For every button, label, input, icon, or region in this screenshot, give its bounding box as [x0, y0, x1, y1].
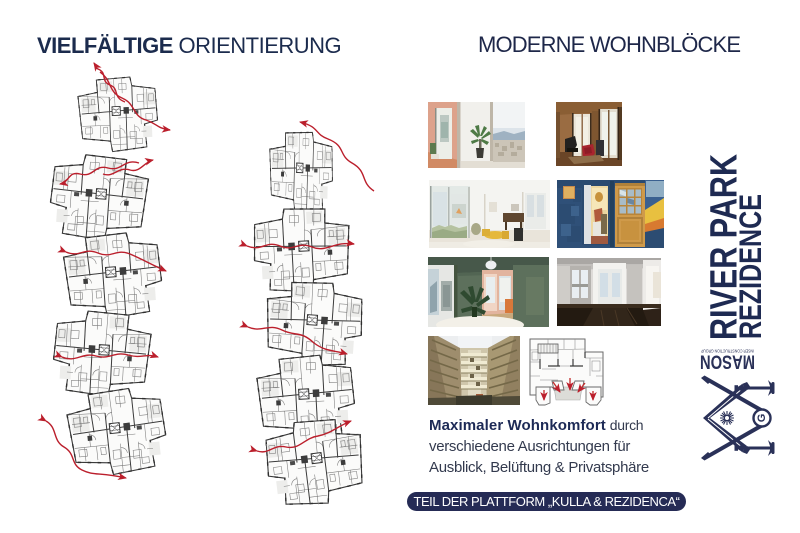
svg-text:INSER CONSTRUCTION GROUP: INSER CONSTRUCTION GROUP [701, 349, 754, 354]
svg-text:G: G [756, 414, 768, 423]
svg-text:REZIDENCE: REZIDENCE [732, 194, 768, 339]
